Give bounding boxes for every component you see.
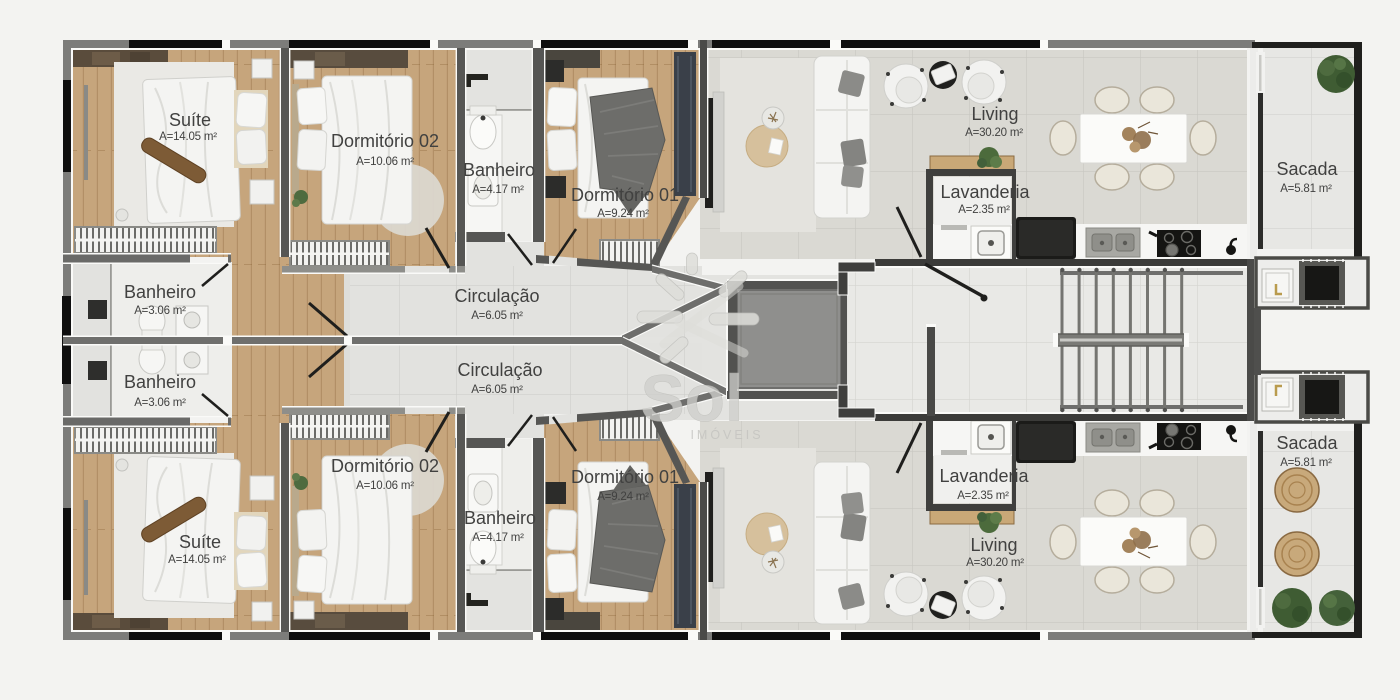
svg-text:A=30.20 m²: A=30.20 m² (965, 127, 1023, 139)
svg-text:Dormitório 01: Dormitório 01 (571, 185, 679, 205)
svg-text:A=4.17 m²: A=4.17 m² (472, 532, 524, 544)
svg-text:Sacada: Sacada (1276, 159, 1338, 179)
svg-text:A=9.24 m²: A=9.24 m² (597, 208, 649, 220)
svg-text:A=9.24 m²: A=9.24 m² (597, 491, 649, 503)
svg-text:Suíte: Suíte (169, 110, 211, 130)
svg-text:Banheiro: Banheiro (463, 160, 535, 180)
svg-text:A=6.05 m²: A=6.05 m² (471, 310, 523, 322)
svg-text:A=10.06 m²: A=10.06 m² (356, 156, 414, 168)
svg-text:Sacada: Sacada (1276, 433, 1338, 453)
svg-text:Banheiro: Banheiro (464, 508, 536, 528)
svg-text:Banheiro: Banheiro (124, 282, 196, 302)
svg-text:Lavanderia: Lavanderia (939, 466, 1029, 486)
svg-text:A=2.35 m²: A=2.35 m² (958, 204, 1010, 216)
svg-text:Dormitório 02: Dormitório 02 (331, 131, 439, 151)
svg-text:Dormitório 01: Dormitório 01 (571, 467, 679, 487)
svg-text:Circulação: Circulação (454, 286, 539, 306)
svg-text:Dormitório 02: Dormitório 02 (331, 456, 439, 476)
svg-text:A=4.17 m²: A=4.17 m² (472, 184, 524, 196)
svg-text:A=14.05 m²: A=14.05 m² (159, 131, 217, 143)
svg-text:A=5.81 m²: A=5.81 m² (1280, 457, 1332, 469)
svg-text:A=6.05 m²: A=6.05 m² (471, 384, 523, 396)
svg-text:Suíte: Suíte (179, 532, 221, 552)
svg-text:Sol: Sol (641, 361, 744, 435)
svg-text:Lavanderia: Lavanderia (940, 182, 1030, 202)
svg-text:Living: Living (970, 535, 1017, 555)
svg-text:A=14.05 m²: A=14.05 m² (168, 554, 226, 566)
svg-text:A=10.06 m²: A=10.06 m² (356, 480, 414, 492)
svg-text:Banheiro: Banheiro (124, 372, 196, 392)
svg-text:IMÓVEIS: IMÓVEIS (690, 427, 763, 442)
svg-text:A=3.06 m²: A=3.06 m² (134, 397, 186, 409)
svg-text:A=5.81 m²: A=5.81 m² (1280, 183, 1332, 195)
svg-text:Circulação: Circulação (457, 360, 542, 380)
svg-text:A=2.35 m²: A=2.35 m² (957, 490, 1009, 502)
svg-text:A=30.20 m²: A=30.20 m² (966, 557, 1024, 569)
svg-text:Living: Living (971, 104, 1018, 124)
svg-text:A=3.06 m²: A=3.06 m² (134, 305, 186, 317)
